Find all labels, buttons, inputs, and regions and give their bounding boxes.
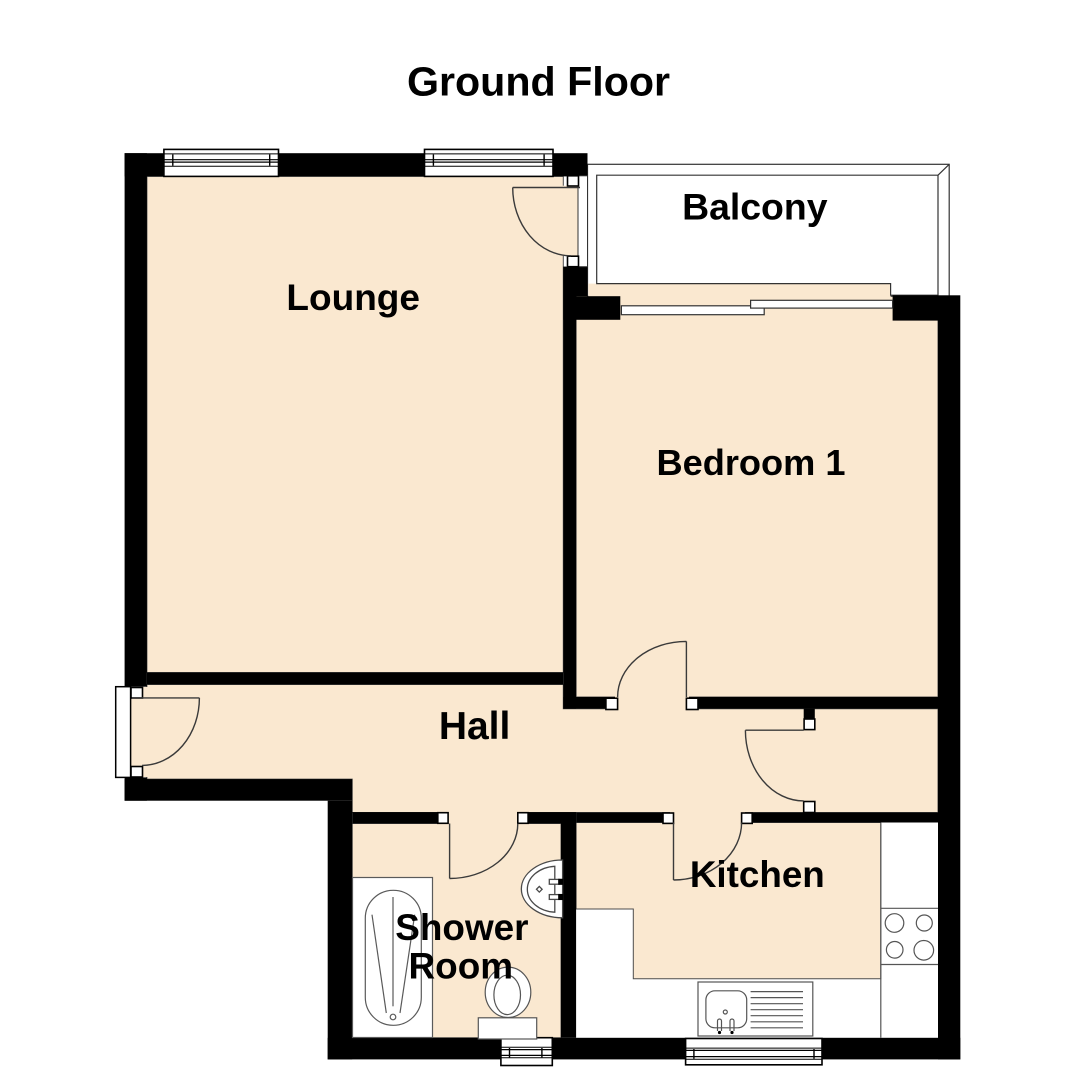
svg-text:Room: Room	[409, 945, 514, 986]
svg-text:Balcony: Balcony	[682, 186, 828, 228]
svg-text:Shower: Shower	[395, 907, 528, 948]
svg-text:Hall: Hall	[439, 705, 511, 748]
svg-text:Lounge: Lounge	[286, 277, 420, 318]
svg-text:Ground Floor: Ground Floor	[407, 59, 670, 105]
svg-text:Kitchen: Kitchen	[690, 854, 825, 895]
svg-text:Bedroom 1: Bedroom 1	[656, 442, 845, 483]
